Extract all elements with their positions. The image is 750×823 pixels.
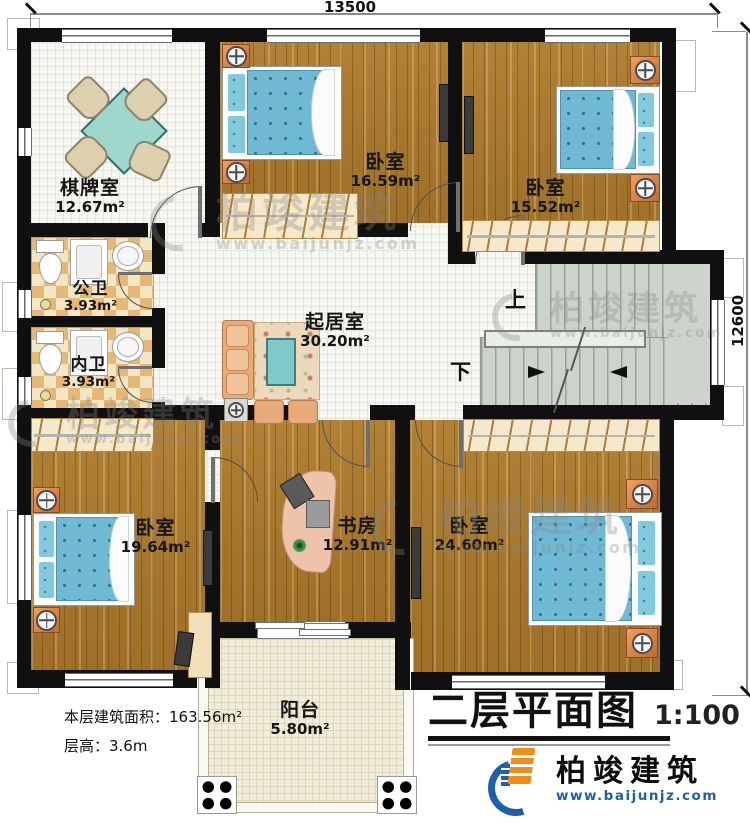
armchair <box>254 400 284 424</box>
dimension-width-label: 13500 <box>295 0 405 16</box>
wall <box>370 405 415 420</box>
title-underline <box>428 736 670 741</box>
wall <box>662 28 676 264</box>
window <box>711 300 725 385</box>
nightstand <box>222 44 250 68</box>
bed <box>222 66 342 160</box>
stair-arrow-left <box>610 366 627 378</box>
nightstand <box>33 607 60 633</box>
window <box>18 377 32 405</box>
wall <box>463 405 724 420</box>
room-label-balcony: 阳台 5.80m² <box>240 700 360 738</box>
floor-area-note: 本层建筑面积：163.56m² <box>64 703 242 732</box>
wall <box>152 308 165 368</box>
room-label-study: 书房 12.91m² <box>300 516 415 554</box>
wardrobe <box>462 220 660 252</box>
side-table <box>224 398 248 422</box>
wall <box>17 223 148 237</box>
door-leaf <box>211 457 215 503</box>
window <box>18 290 32 318</box>
floor-drain <box>40 390 51 401</box>
window <box>62 29 172 43</box>
room-label-bedroom-bottom-left: 卧室 19.64m² <box>98 518 213 556</box>
sink <box>112 241 144 271</box>
nightstand <box>630 174 660 202</box>
tv <box>439 84 449 142</box>
wall <box>660 405 674 690</box>
lamp-icon <box>226 46 247 67</box>
window <box>267 29 420 43</box>
lamp-icon <box>226 162 247 183</box>
extension-line <box>30 13 31 28</box>
wall <box>356 223 408 237</box>
sliding-door-leaf <box>299 629 351 636</box>
room-label-chess: 棋牌室 12.67m² <box>35 178 145 216</box>
window <box>65 673 173 687</box>
wall <box>200 223 220 237</box>
room-label-bedroom-top-mid: 卧室 16.59m² <box>328 152 443 190</box>
door-leaf <box>198 186 202 238</box>
brand-name: 柏竣建筑 <box>556 755 718 788</box>
room-label-bedroom-top-right: 卧室 15.52m² <box>488 178 603 216</box>
lamp-icon <box>635 60 656 81</box>
brand-logo: 柏竣建筑 www.baijunjz.com <box>488 748 718 810</box>
door-leaf <box>366 420 370 468</box>
armchair <box>288 400 318 424</box>
nightstand <box>626 479 658 509</box>
stair-landing <box>668 257 709 403</box>
room-label-private-bath: 内卫 3.93m² <box>36 356 141 390</box>
lamp-icon <box>228 402 244 418</box>
drawing-title-block: 二层平面图 1:100 <box>428 690 740 746</box>
extension-line <box>717 13 718 28</box>
window <box>545 29 630 43</box>
floor-notes: 本层建筑面积：163.56m² 层高：3.6m <box>64 703 242 760</box>
column-marker <box>377 776 417 814</box>
bed <box>528 512 662 626</box>
tv <box>464 96 474 154</box>
window <box>18 515 32 600</box>
lamp-icon <box>632 484 653 505</box>
brand-logo-icon <box>488 748 546 810</box>
room-label-public-bath: 公卫 3.93m² <box>38 280 143 314</box>
nightstand <box>626 628 658 658</box>
sofa <box>222 320 254 400</box>
bed <box>556 86 660 174</box>
door-leaf <box>118 272 152 275</box>
lamp-icon <box>36 490 57 511</box>
sill-box <box>722 258 744 298</box>
wall <box>448 250 475 264</box>
wall <box>205 28 220 237</box>
sill-box <box>722 386 744 426</box>
door-leaf <box>456 182 460 232</box>
extension-line <box>712 31 746 32</box>
stair-arrow-right <box>528 366 545 378</box>
wall <box>31 316 152 327</box>
title-underline-thin <box>428 744 670 746</box>
window <box>452 675 605 689</box>
nightstand <box>630 56 660 84</box>
sliding-door-leaf <box>255 622 305 629</box>
column-marker <box>197 776 237 814</box>
drawing-title: 二层平面图 <box>428 690 638 732</box>
wall <box>395 420 410 690</box>
drawing-scale: 1:100 <box>654 700 740 731</box>
lamp-icon <box>635 178 656 199</box>
lamp-icon <box>36 610 57 631</box>
stair-rail <box>484 330 646 348</box>
wardrobe <box>463 419 660 452</box>
room-label-bedroom-bottom-right: 卧室 24.60m² <box>412 516 527 554</box>
stair-up-label: 上 <box>505 290 526 311</box>
wardrobe <box>31 418 154 452</box>
lamp-icon <box>632 633 653 654</box>
floor-height-note: 层高：3.6m <box>64 732 242 761</box>
brand-website: www.baijunjz.com <box>556 788 718 804</box>
nightstand <box>222 160 250 184</box>
room-label-living: 起居室 30.20m² <box>270 312 400 350</box>
wall <box>523 250 724 264</box>
wall <box>205 405 220 450</box>
floor-plan: 13500 12600 上 下 <box>0 0 750 823</box>
nightstand <box>33 487 60 513</box>
wardrobe <box>222 193 358 239</box>
window <box>18 128 32 156</box>
dimension-height-label: 12600 <box>729 293 747 349</box>
dimension-line-right <box>746 32 748 696</box>
stair-down-label: 下 <box>450 362 471 383</box>
